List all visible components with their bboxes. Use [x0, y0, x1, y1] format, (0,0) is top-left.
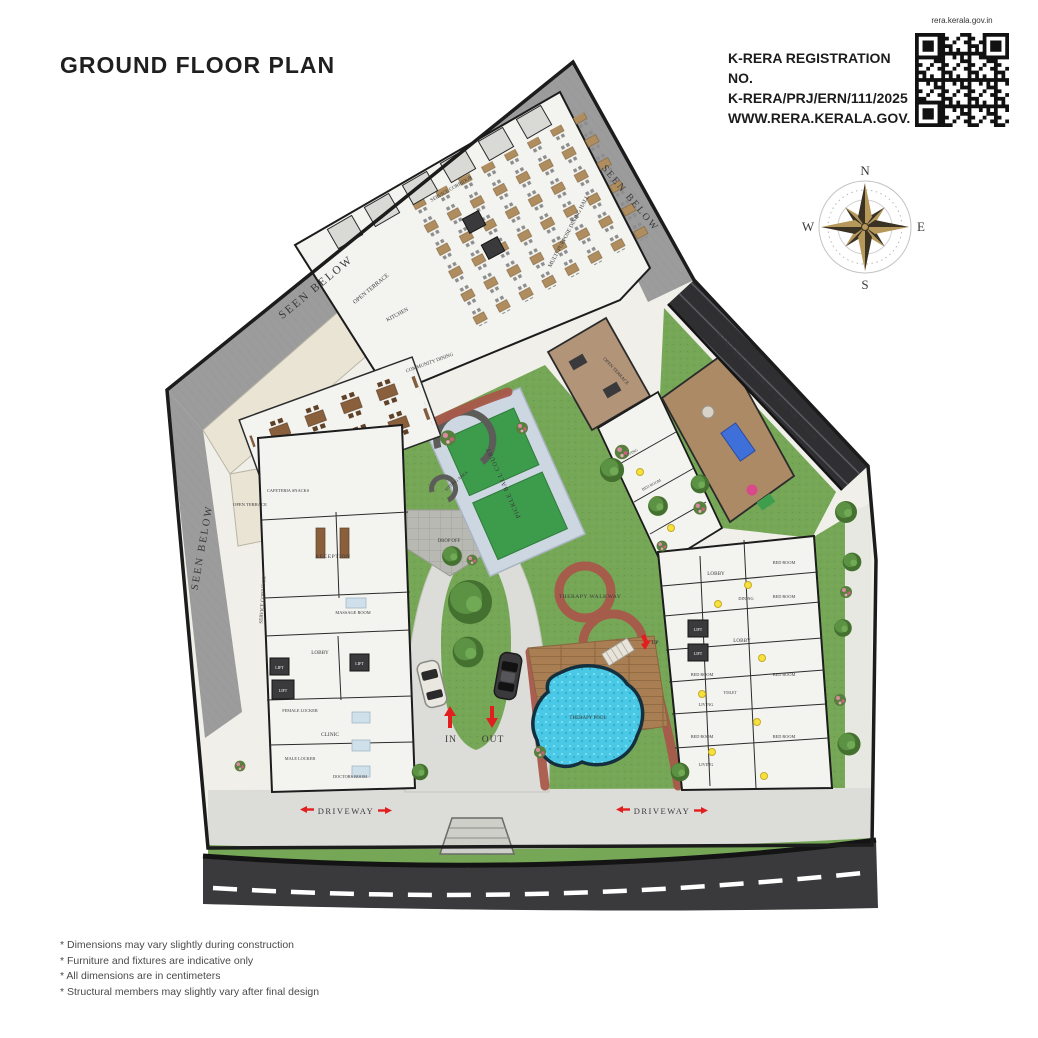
road-label: ROAD — [465, 866, 499, 876]
lift-label: LIFT — [694, 651, 703, 656]
driveway-left-label: DRIVEWAY — [318, 806, 375, 816]
up-label: UP — [651, 640, 659, 646]
cafeteria-label: CAFETERIA SNACKS — [267, 488, 310, 493]
compass-north-label: N — [860, 163, 870, 178]
lift-label: LIFT — [694, 627, 703, 632]
drop-off-label: DROP OFF — [438, 539, 461, 544]
massage-room-label: MASSAGE ROOM — [335, 610, 370, 615]
bed-room-label: BED ROOM — [773, 594, 796, 599]
lobby-right-label: LOBBY — [707, 571, 725, 577]
male-locker-label: MALE LOCKER — [285, 756, 316, 761]
toilet-label: TOILET — [723, 691, 737, 695]
dining-label: DINING — [738, 596, 753, 601]
bed-room-label: BED ROOM — [773, 672, 796, 677]
living-label: LIVING — [699, 762, 714, 767]
floor-plan-page: GROUND FLOOR PLAN K-RERA REGISTRATION NO… — [0, 0, 1038, 1038]
lobby-right2-label: LOBBY — [733, 638, 751, 644]
lobby-left-label: LOBBY — [311, 650, 329, 656]
qr-code: rera.kerala.gov.in — [910, 16, 1014, 132]
doctors-room-label: DOCTORS ROOM — [333, 774, 367, 779]
lift-label: LIFT — [355, 661, 364, 666]
bed-room-label: BED ROOM — [773, 734, 796, 739]
clinic-label: CLINIC — [321, 732, 339, 738]
site-plan-drawing: SEEN BELOW SEEN BELOW SEEN BELOW OPEN TE… — [0, 0, 1038, 1038]
compass-east-label: E — [917, 219, 925, 234]
lift-label: LIFT — [275, 665, 284, 670]
compass-south-label: S — [861, 277, 868, 292]
lift-label: LIFT — [279, 688, 288, 693]
reception-label: RECEPTION — [315, 554, 350, 560]
bed-room-label: BED ROOM — [691, 672, 714, 677]
bed-room-label: BED ROOM — [691, 734, 714, 739]
in-label: IN — [445, 735, 457, 745]
compass-rose: N E S W — [802, 163, 925, 292]
compass-west-label: W — [802, 219, 815, 234]
living-label: LIVING — [699, 702, 714, 707]
female-locker-label: FEMALE LOCKER — [282, 708, 318, 713]
bed-room-label: BED ROOM — [773, 560, 796, 565]
therapy-pool-label: THERAPY POOL — [569, 716, 606, 721]
therapy-walkway-label: THERAPY WALKWAY — [559, 594, 622, 600]
out-label: OUT — [482, 735, 505, 745]
qr-caption: rera.kerala.gov.in — [931, 16, 992, 25]
driveway-band — [208, 788, 872, 848]
open-terrace-left-label: OPEN TERRACE — [233, 502, 267, 507]
driveway-right-label: DRIVEWAY — [634, 806, 691, 816]
